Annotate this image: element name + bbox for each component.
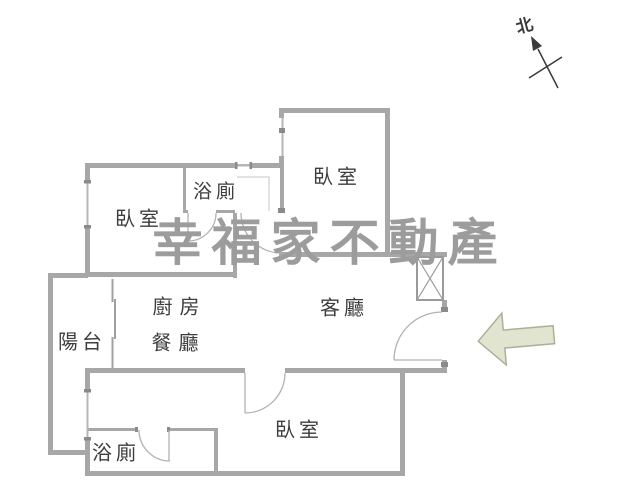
- jamb-block: [250, 162, 253, 169]
- room-label-dining: 餐廳: [145, 327, 206, 356]
- wall-segment: [285, 368, 447, 373]
- window-line: [87, 183, 89, 226]
- wall-segment: [279, 108, 390, 113]
- room-label-kitchen: 廚房: [146, 291, 207, 320]
- floorplan: 幸福家不動產 臥室 浴廁 臥室 廚房 餐廳 客廳 陽台 臥室 浴廁 北: [0, 0, 640, 480]
- walls: [48, 108, 447, 476]
- jamb-block: [441, 362, 448, 367]
- compass-cross-tick: [529, 57, 562, 78]
- entrance-door-arc: [394, 312, 442, 360]
- wall-segment: [48, 273, 53, 455]
- room-label-balcony: 陽台: [54, 326, 106, 355]
- bathroom-bottom-door-arc: [139, 430, 170, 461]
- jamb-block: [441, 307, 448, 312]
- watermark: 幸福家不動產: [144, 203, 507, 275]
- compass-arrow: [529, 36, 562, 88]
- room-label-bedroom-top-right: 臥室: [309, 161, 361, 190]
- sliding-door: [112, 279, 117, 368]
- jamb-block: [84, 225, 91, 229]
- window-line: [237, 164, 250, 167]
- jamb-block: [279, 128, 285, 133]
- wall-segment: [85, 368, 245, 373]
- wall-segment: [250, 163, 284, 168]
- window-line: [87, 392, 89, 440]
- jamb-block: [84, 180, 91, 184]
- wall-segment: [170, 428, 214, 431]
- wall-segment: [85, 163, 237, 168]
- compass-shaft: [538, 49, 558, 88]
- wall-segment: [400, 373, 405, 473]
- wall-segment: [85, 471, 405, 476]
- room-label-bathroom-top: 浴廁: [189, 177, 239, 204]
- wall-segment: [88, 428, 137, 431]
- wall-segment: [85, 226, 90, 277]
- window-line: [282, 118, 284, 156]
- sliding-door-panel: [114, 299, 116, 339]
- sliding-door-panel: [112, 279, 114, 302]
- bedroom-bottom-door-arc: [245, 373, 285, 413]
- wall-segment: [85, 368, 90, 392]
- jamb-block: [235, 162, 238, 169]
- wall-segment: [48, 273, 88, 278]
- jamb-block: [84, 389, 91, 393]
- entrance-arrow: [476, 309, 556, 367]
- door-jambs: [84, 128, 448, 441]
- room-label-bedroom-top-left: 臥室: [111, 203, 163, 232]
- jamb-block: [135, 427, 138, 432]
- room-label-living: 客廳: [316, 292, 368, 321]
- wall-segment: [48, 450, 88, 455]
- compass-arrowhead: [531, 36, 542, 51]
- wall-segment: [279, 108, 284, 118]
- wall-segment: [214, 428, 218, 473]
- wall-segment: [279, 156, 284, 167]
- sliding-door-panel: [112, 337, 114, 368]
- room-label-bathroom-bottom: 浴廁: [88, 437, 140, 466]
- room-label-bedroom-bottom: 臥室: [271, 414, 323, 443]
